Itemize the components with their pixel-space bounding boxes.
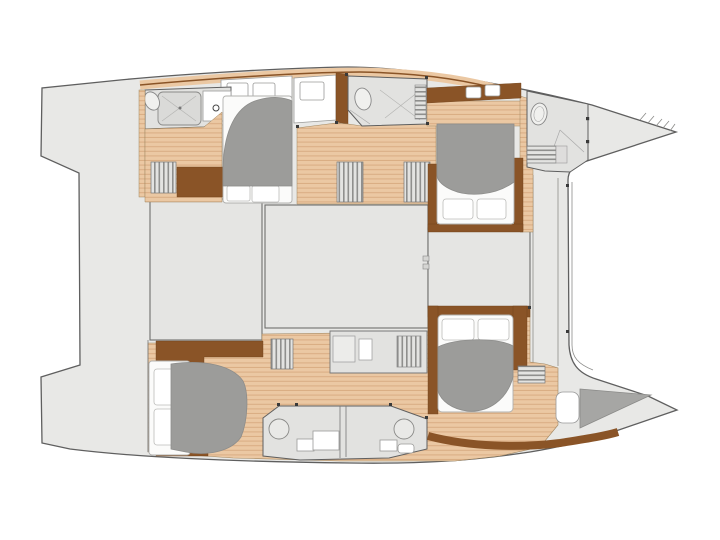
bed-frame	[428, 224, 523, 232]
cockpit-panel	[150, 199, 262, 340]
stairs	[518, 366, 545, 383]
saloon-panel	[265, 205, 428, 328]
hinge	[423, 264, 429, 269]
duvet	[437, 124, 514, 194]
pillow	[252, 186, 279, 202]
stairs	[527, 146, 556, 163]
counter	[333, 336, 355, 362]
stairs	[271, 339, 293, 369]
shower	[394, 419, 414, 439]
closet	[337, 162, 363, 202]
hinge	[423, 256, 429, 261]
stairs	[151, 162, 176, 193]
toilet	[398, 444, 414, 453]
pillow	[478, 319, 509, 340]
vanity	[313, 431, 339, 450]
floor	[427, 101, 521, 126]
floorplan-svg: Catamaran yacht interior deck plan (top …	[0, 0, 720, 540]
floorplan: Catamaran yacht interior deck plan (top …	[0, 0, 720, 540]
window	[300, 82, 324, 100]
stove	[397, 336, 421, 367]
aft-port-bed	[223, 96, 292, 203]
bed-frame	[513, 306, 527, 370]
window	[485, 85, 500, 96]
bed-frame	[428, 164, 437, 230]
galley	[330, 331, 427, 373]
forward-panel	[428, 228, 530, 308]
bulkhead	[336, 73, 348, 124]
sink	[359, 339, 372, 360]
pillow	[227, 186, 250, 201]
step	[556, 146, 567, 163]
window	[466, 87, 481, 98]
pillow	[443, 199, 473, 219]
bow-port-bathroom	[527, 91, 588, 172]
sink	[380, 440, 397, 451]
shower-drain	[179, 107, 182, 110]
bed-frame	[514, 158, 523, 231]
aft-starboard-bed	[149, 361, 247, 455]
mid-port-bathroom	[348, 76, 427, 126]
sink	[297, 439, 314, 451]
duvet	[171, 362, 247, 453]
wood-strip	[139, 90, 145, 197]
pillow	[442, 319, 474, 340]
pillow	[477, 199, 506, 219]
deck-hatch	[556, 392, 579, 423]
desk	[177, 167, 225, 197]
shelf	[415, 85, 426, 119]
starboard-bathrooms	[263, 406, 427, 460]
bed-frame	[428, 306, 438, 414]
closet	[404, 162, 430, 202]
